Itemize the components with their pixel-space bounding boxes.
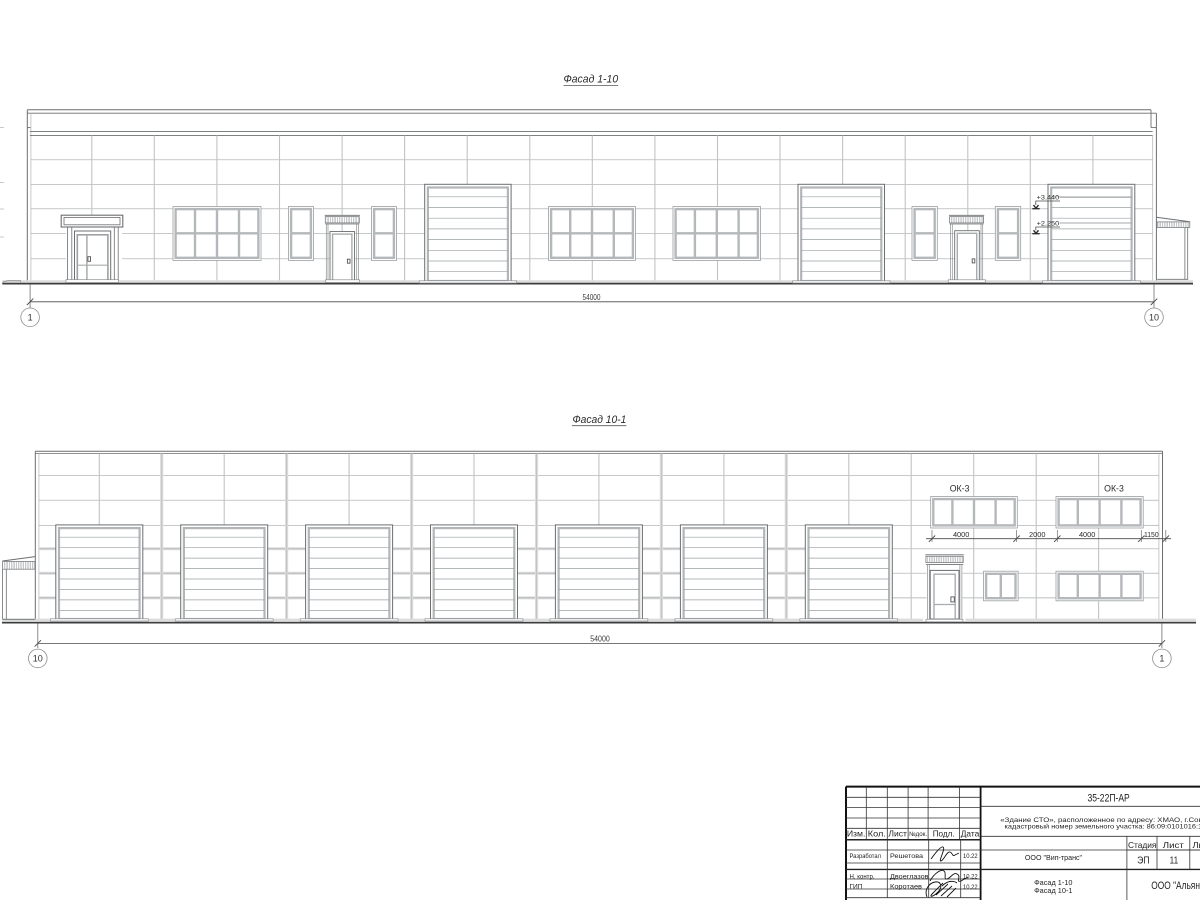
svg-text:4000: 4000: [953, 530, 970, 539]
svg-text:Лист: Лист: [888, 830, 907, 839]
svg-text:кадастровый номер земельного у: кадастровый номер земельного участка: 86…: [1005, 823, 1200, 831]
svg-text:1: 1: [1159, 654, 1164, 664]
svg-text:Фасад 1-10: Фасад 1-10: [563, 74, 618, 86]
svg-text:Изм.: Изм.: [847, 830, 866, 839]
svg-text:Подл.: Подл.: [933, 830, 955, 839]
svg-text:2000: 2000: [1029, 530, 1046, 539]
svg-text:35-22П-АР: 35-22П-АР: [1087, 793, 1129, 805]
svg-text:Коротаев: Коротаев: [890, 884, 923, 891]
svg-text:10: 10: [1149, 313, 1159, 323]
svg-text:Дата: Дата: [961, 830, 980, 839]
svg-text:Листов: Листов: [1193, 840, 1200, 850]
svg-text:ОК-3: ОК-3: [950, 483, 970, 493]
svg-text:11: 11: [1170, 856, 1179, 867]
svg-text:ООО "Вип-транс": ООО "Вип-транс": [1025, 855, 1083, 862]
svg-text:10.22: 10.22: [963, 884, 978, 891]
svg-text:4000: 4000: [1079, 530, 1096, 539]
svg-text:10.22: 10.22: [963, 873, 978, 880]
svg-text:ОК-3: ОК-3: [1104, 483, 1124, 493]
svg-text:Стадия: Стадия: [1128, 840, 1157, 850]
svg-text:Н. контр.: Н. контр.: [850, 873, 875, 880]
svg-text:54000: 54000: [583, 292, 601, 302]
svg-text:10.22: 10.22: [963, 853, 978, 860]
svg-text:+2.250: +2.250: [1037, 220, 1060, 227]
svg-text:10: 10: [33, 654, 43, 664]
svg-text:Лист: Лист: [1163, 840, 1184, 850]
svg-text:1150: 1150: [1144, 530, 1159, 539]
svg-text:ГИП: ГИП: [850, 884, 863, 891]
svg-text:Кол.: Кол.: [868, 830, 886, 839]
svg-text:1: 1: [28, 313, 33, 323]
svg-text:+3.440: +3.440: [1037, 194, 1060, 201]
svg-text:Разработал: Разработал: [850, 852, 882, 860]
svg-text:54000: 54000: [590, 633, 610, 643]
svg-text:№док.: №док.: [909, 831, 927, 838]
svg-text:Фасад 10-1: Фасад 10-1: [1034, 886, 1072, 895]
svg-text:Решетова: Решетова: [890, 853, 923, 860]
svg-text:Двоеглазов: Двоеглазов: [890, 873, 929, 880]
svg-text:ООО "Альянс-Проект": ООО "Альянс-Проект": [1151, 880, 1200, 892]
svg-text:Фасад 10-1: Фасад 10-1: [573, 414, 627, 426]
svg-text:ЭП: ЭП: [1137, 856, 1150, 867]
